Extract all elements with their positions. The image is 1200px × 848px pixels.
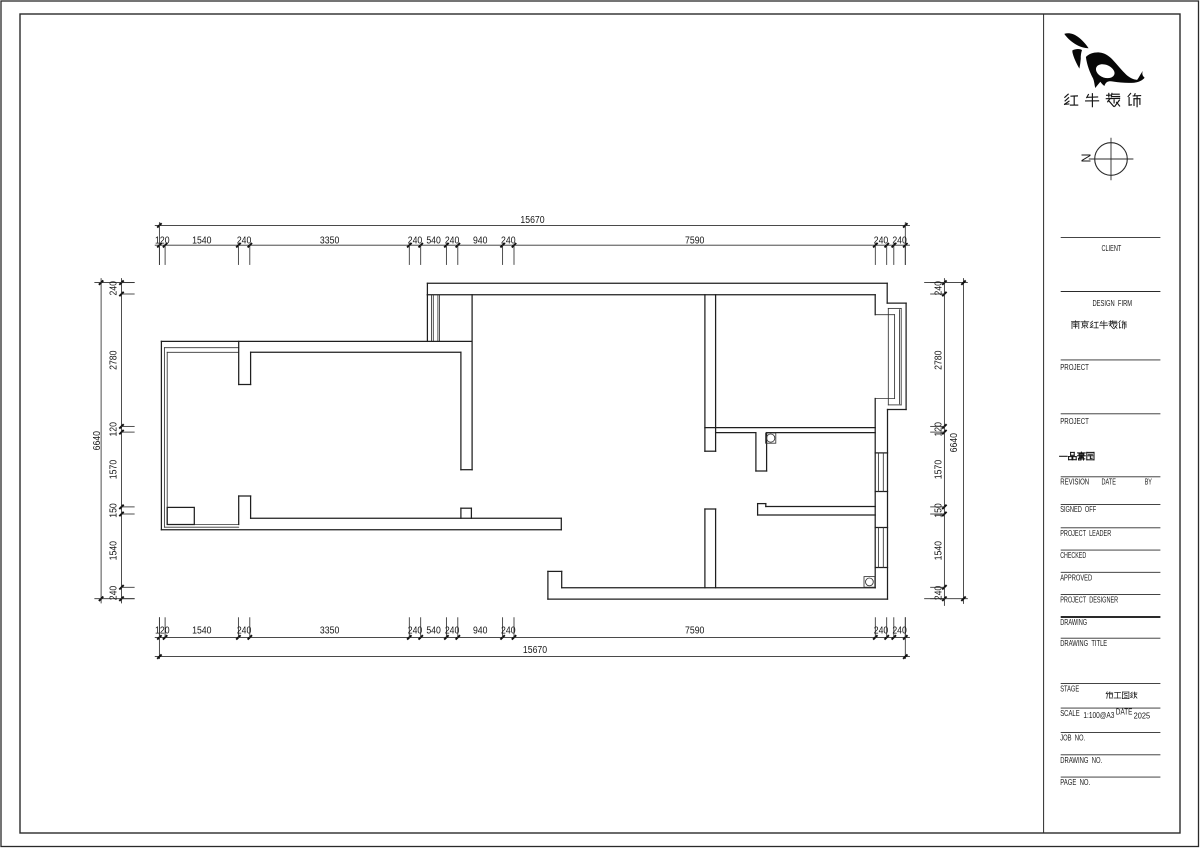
svg-text:PROJECT DESIGNER: PROJECT DESIGNER xyxy=(1060,595,1118,605)
svg-text:240: 240 xyxy=(108,585,119,600)
svg-text:DRAWING NO.: DRAWING NO. xyxy=(1060,755,1102,765)
svg-text:240: 240 xyxy=(874,625,889,636)
svg-text:PROJECT: PROJECT xyxy=(1060,362,1089,372)
svg-text:7590: 7590 xyxy=(685,236,705,247)
svg-text:6640: 6640 xyxy=(949,433,960,453)
svg-text:240: 240 xyxy=(408,236,423,247)
svg-text:DRAWING TITLE: DRAWING TITLE xyxy=(1060,638,1107,648)
svg-text:15670: 15670 xyxy=(520,215,545,226)
svg-text:JOB NO.: JOB NO. xyxy=(1060,733,1085,743)
svg-text:240: 240 xyxy=(892,236,907,247)
svg-text:2780: 2780 xyxy=(933,350,944,370)
svg-text:240: 240 xyxy=(501,236,516,247)
svg-text:120: 120 xyxy=(933,422,944,437)
svg-text:240: 240 xyxy=(933,585,944,600)
svg-text:120: 120 xyxy=(155,625,170,636)
svg-text:BY: BY xyxy=(1145,477,1152,487)
svg-text:120: 120 xyxy=(108,422,119,437)
svg-text:240: 240 xyxy=(237,236,252,247)
svg-text:240: 240 xyxy=(501,625,516,636)
svg-text:1570: 1570 xyxy=(108,459,119,479)
svg-text:PROJECT: PROJECT xyxy=(1060,416,1089,426)
svg-text:1570: 1570 xyxy=(933,459,944,479)
svg-text:1:100@A3: 1:100@A3 xyxy=(1083,710,1114,720)
svg-text:2025: 2025 xyxy=(1134,711,1151,721)
svg-text:DATE: DATE xyxy=(1102,477,1117,487)
svg-text:240: 240 xyxy=(445,625,460,636)
svg-text:N: N xyxy=(1080,153,1094,162)
svg-text:1540: 1540 xyxy=(108,541,119,561)
svg-text:240: 240 xyxy=(237,625,252,636)
svg-text:PROJECT LEADER: PROJECT LEADER xyxy=(1060,528,1111,538)
svg-text:240: 240 xyxy=(874,236,889,247)
svg-text:3350: 3350 xyxy=(320,625,340,636)
svg-text:940: 940 xyxy=(473,625,488,636)
svg-text:CLIENT: CLIENT xyxy=(1102,243,1122,253)
svg-text:240: 240 xyxy=(408,625,423,636)
svg-text:3350: 3350 xyxy=(320,236,340,247)
svg-text:1540: 1540 xyxy=(192,236,212,247)
svg-text:7590: 7590 xyxy=(685,625,705,636)
svg-text:SIGNED OFF: SIGNED OFF xyxy=(1060,504,1096,514)
svg-text:DRAWING: DRAWING xyxy=(1060,617,1087,627)
svg-text:CHECKED: CHECKED xyxy=(1060,550,1086,560)
svg-text:DATE: DATE xyxy=(1116,707,1133,717)
svg-text:REVISION: REVISION xyxy=(1060,477,1089,487)
svg-text:6640: 6640 xyxy=(92,431,103,451)
svg-text:120: 120 xyxy=(155,236,170,247)
svg-text:540: 540 xyxy=(426,625,441,636)
svg-text:APPROVED: APPROVED xyxy=(1060,572,1092,582)
svg-text:150: 150 xyxy=(933,503,944,518)
svg-text:240: 240 xyxy=(445,236,460,247)
svg-text:SCALE: SCALE xyxy=(1060,708,1080,718)
svg-text:150: 150 xyxy=(108,503,119,518)
svg-text:DESIGN FIRM: DESIGN FIRM xyxy=(1093,298,1133,308)
svg-text:940: 940 xyxy=(473,236,488,247)
svg-text:15670: 15670 xyxy=(523,645,548,656)
svg-text:PAGE NO.: PAGE NO. xyxy=(1060,777,1090,787)
svg-text:540: 540 xyxy=(426,236,441,247)
svg-text:240: 240 xyxy=(892,625,907,636)
svg-text:240: 240 xyxy=(108,281,119,296)
svg-text:2780: 2780 xyxy=(108,350,119,370)
svg-text:1540: 1540 xyxy=(933,541,944,561)
svg-text:STAGE: STAGE xyxy=(1060,684,1079,694)
svg-text:1540: 1540 xyxy=(192,625,212,636)
svg-text:240: 240 xyxy=(933,281,944,296)
